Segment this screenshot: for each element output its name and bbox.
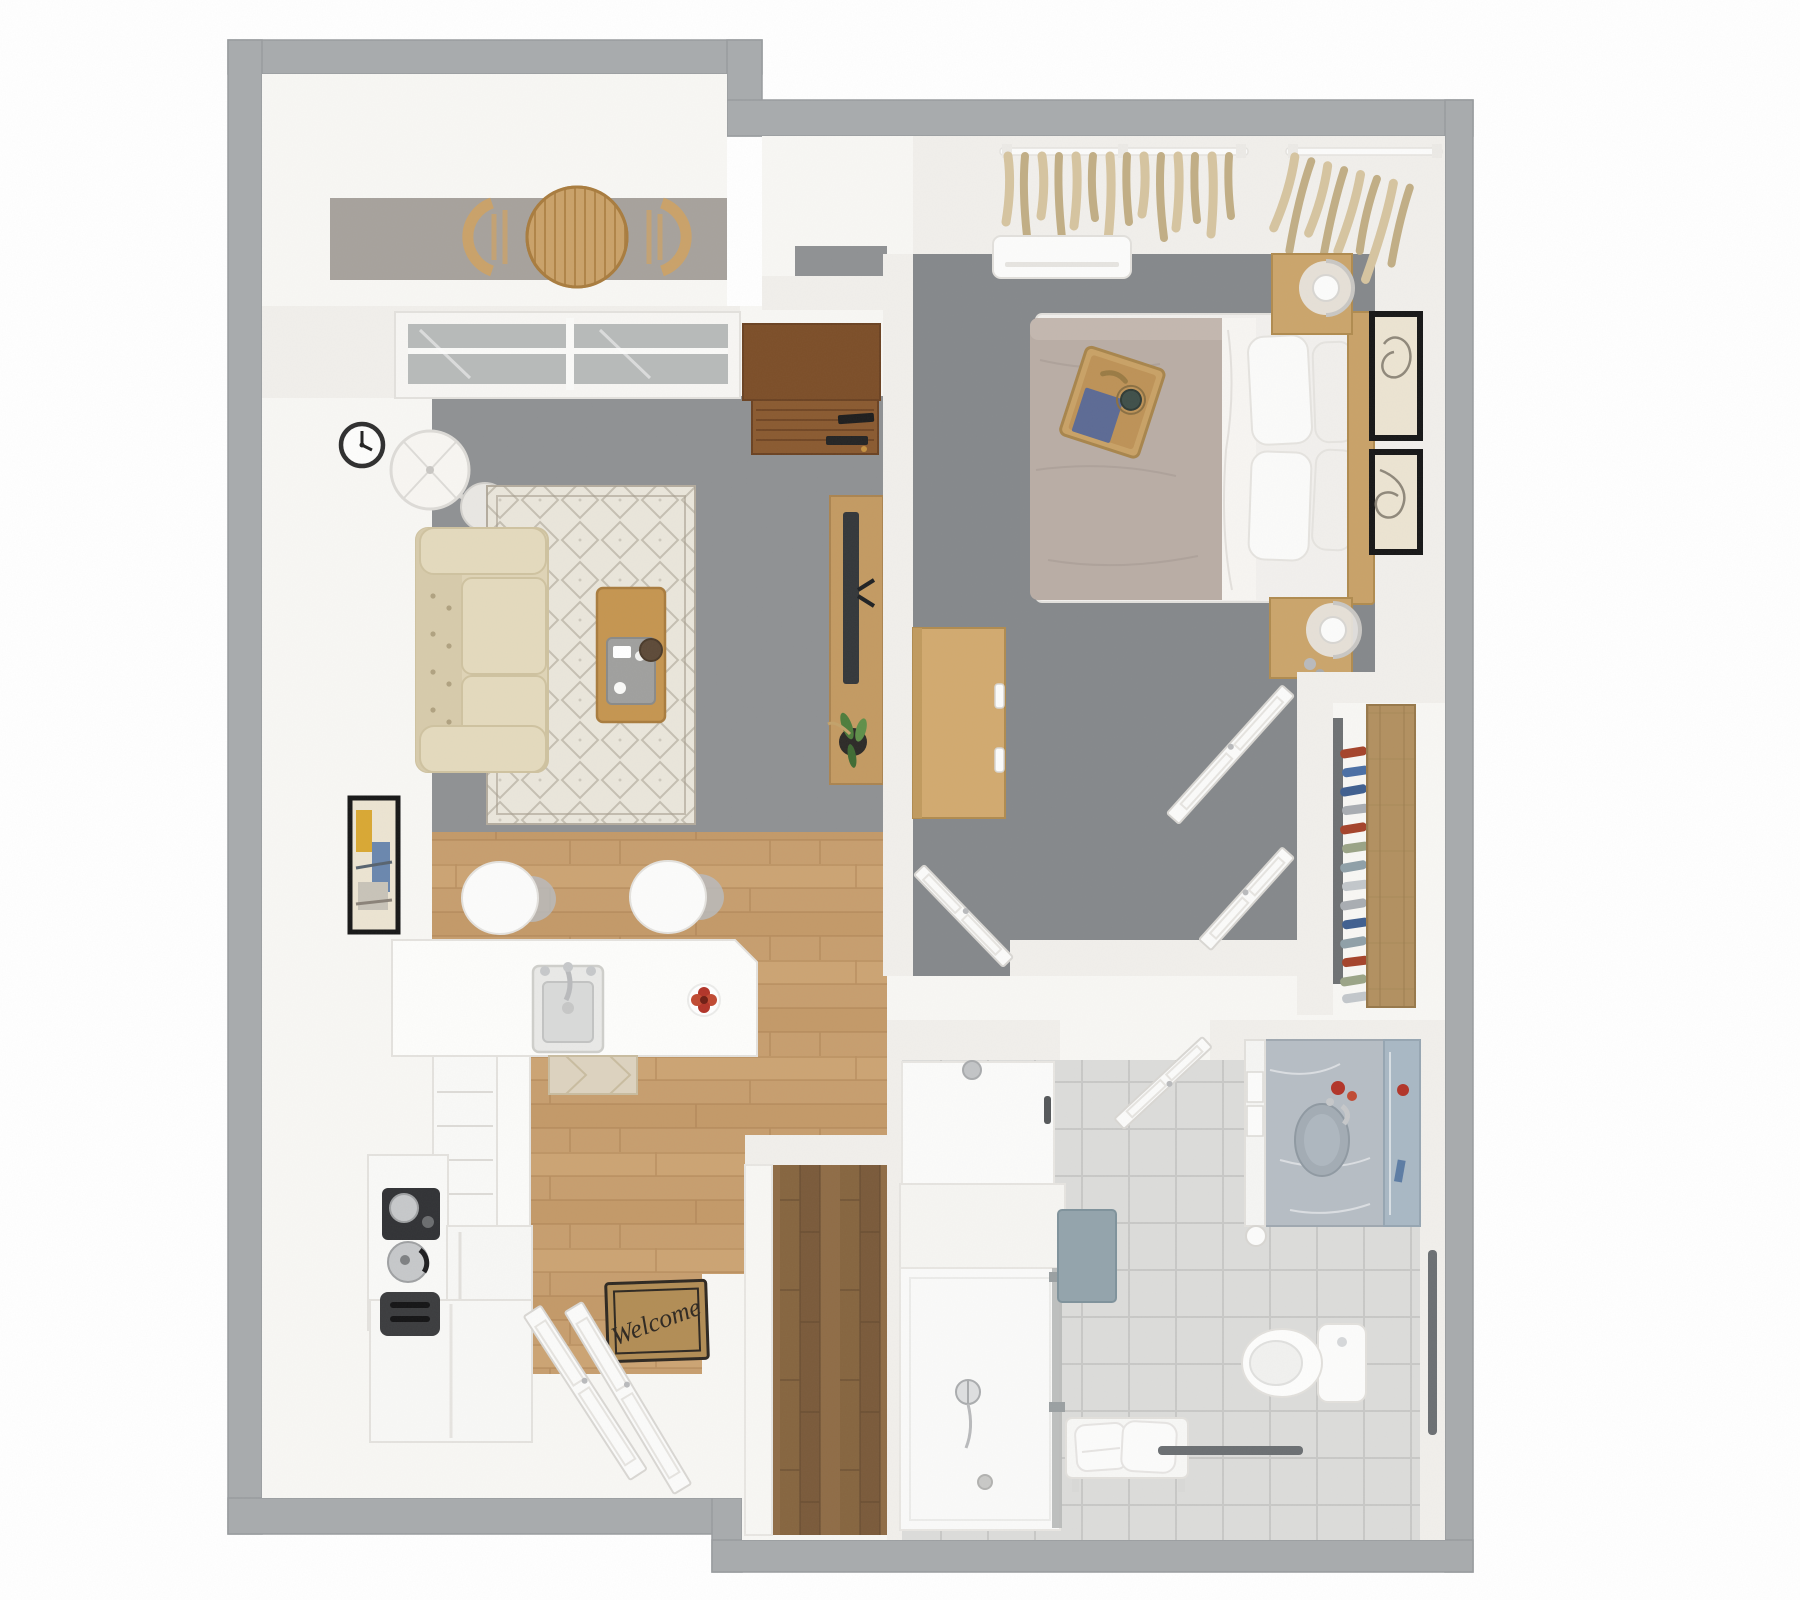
- floor-plan-image: Welcome: [0, 0, 1800, 1600]
- texture-overlay: [0, 0, 1800, 1600]
- screenshot-root: Welcome: [0, 0, 1800, 1600]
